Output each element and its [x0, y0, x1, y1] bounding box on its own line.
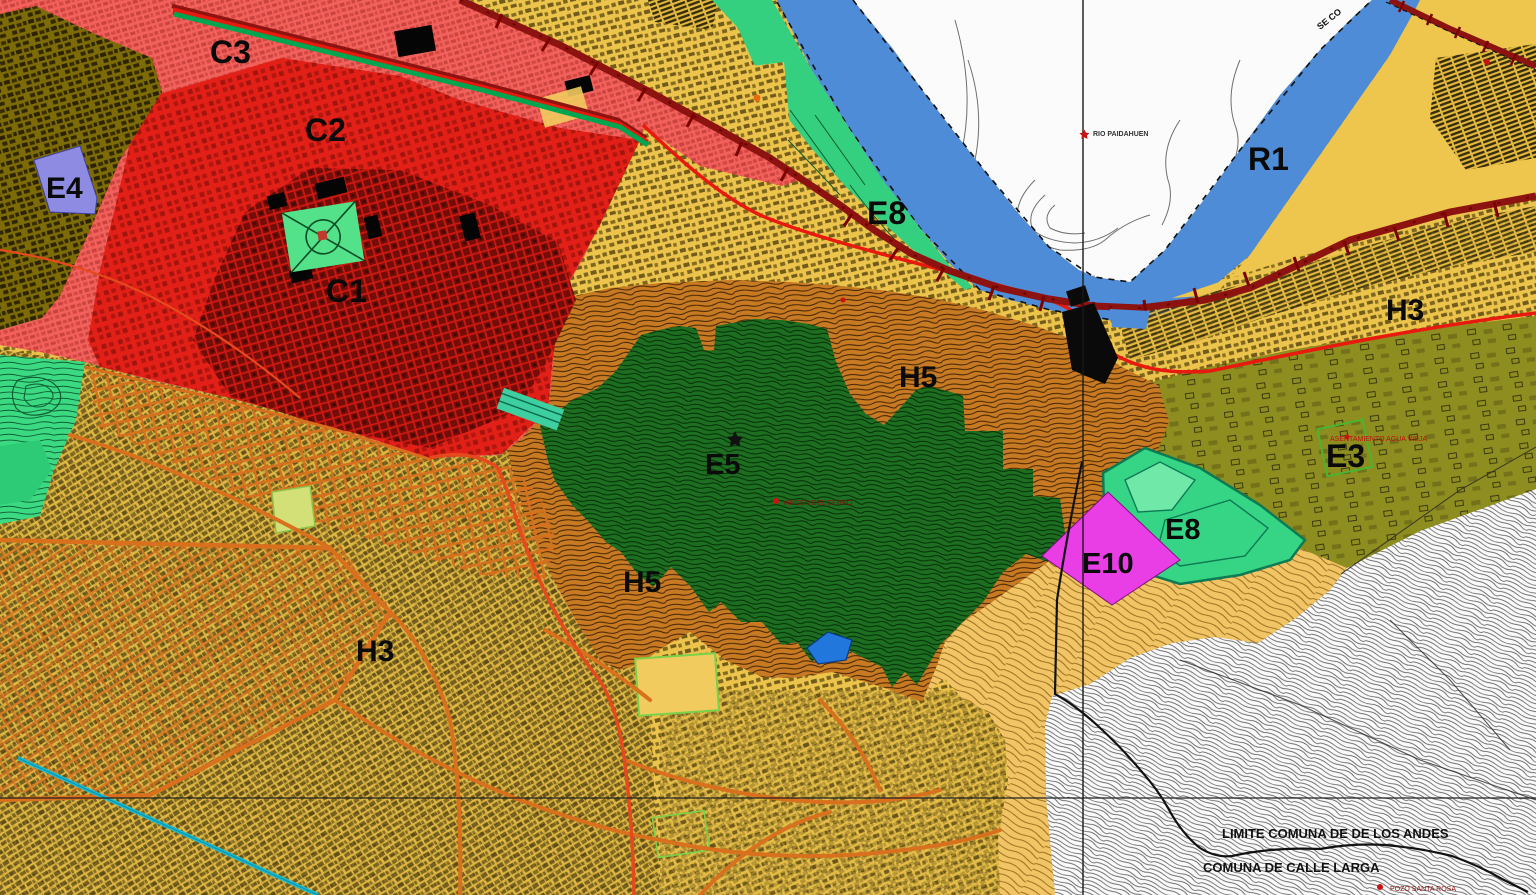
svg-text:LIMITE COMUNA DE DE LOS ANDES: LIMITE COMUNA DE DE LOS ANDES [1222, 826, 1449, 841]
svg-text:RIO PAIDAHUEN: RIO PAIDAHUEN [1093, 131, 1148, 138]
svg-text:POZO SANTA ROSA: POZO SANTA ROSA [1390, 886, 1456, 893]
svg-text:H3: H3 [1386, 294, 1424, 327]
svg-text:C3: C3 [210, 34, 251, 70]
svg-text:E5: E5 [705, 449, 740, 481]
svg-text:VIRGEN DEL CERRO: VIRGEN DEL CERRO [783, 500, 853, 507]
svg-text:H5: H5 [623, 566, 661, 599]
svg-text:C1: C1 [326, 273, 367, 309]
svg-text:R1: R1 [1248, 141, 1289, 177]
svg-text:C2: C2 [305, 112, 346, 148]
svg-text:E8: E8 [1165, 514, 1200, 546]
svg-text:E3: E3 [1326, 438, 1365, 474]
svg-text:E4: E4 [46, 172, 83, 205]
svg-text:COMUNA DE CALLE LARGA: COMUNA DE CALLE LARGA [1203, 860, 1380, 875]
svg-text:H5: H5 [899, 361, 937, 394]
svg-text:E8: E8 [867, 195, 906, 231]
svg-text:E10: E10 [1082, 548, 1134, 580]
svg-text:H3: H3 [356, 635, 394, 668]
